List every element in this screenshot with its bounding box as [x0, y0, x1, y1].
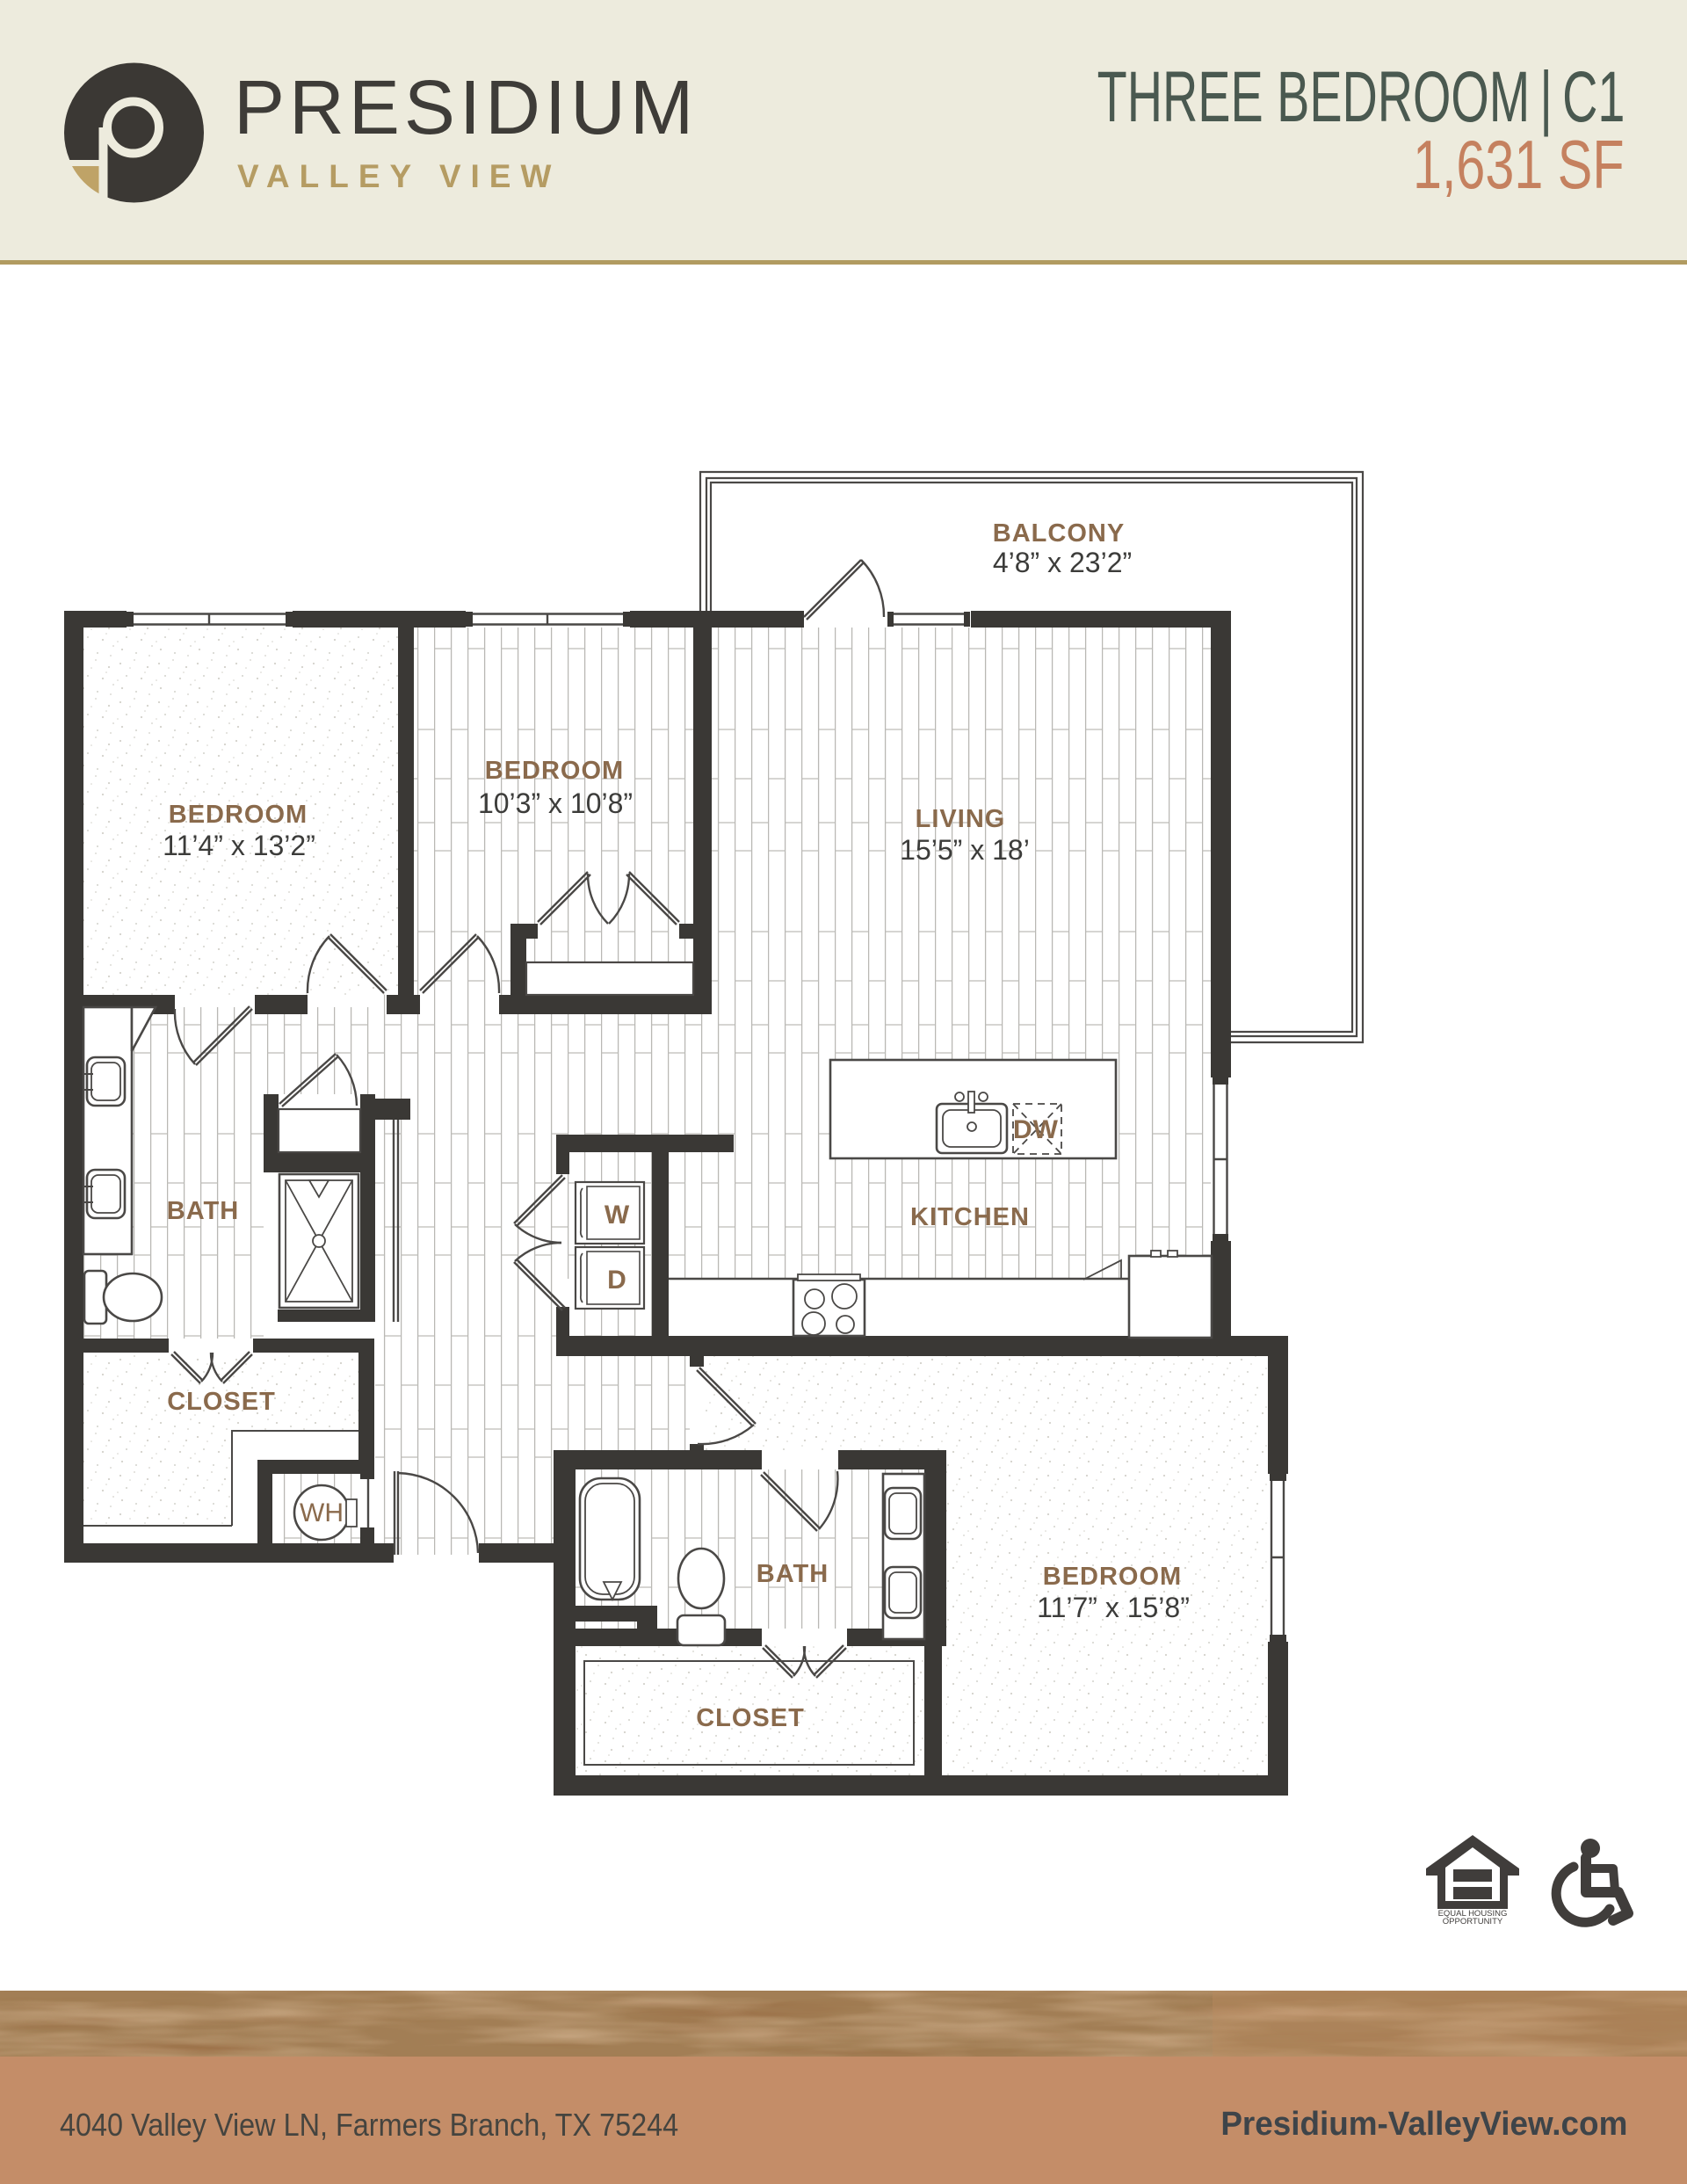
svg-text:BATH: BATH — [757, 1560, 829, 1588]
svg-text:BATH: BATH — [167, 1197, 239, 1225]
svg-text:CLOSET: CLOSET — [167, 1388, 276, 1416]
svg-text:BALCONY: BALCONY — [993, 519, 1125, 548]
svg-text:CLOSET: CLOSET — [696, 1704, 805, 1732]
svg-text:4’8” x 23’2”: 4’8” x 23’2” — [993, 547, 1132, 578]
svg-text:11’4” x 13’2”: 11’4” x 13’2” — [163, 830, 315, 861]
svg-text:WH: WH — [300, 1498, 344, 1527]
svg-text:15’5” x 18’: 15’5” x 18’ — [900, 834, 1030, 866]
svg-text:DW: DW — [1013, 1115, 1059, 1144]
svg-text:OPPORTUNITY: OPPORTUNITY — [1443, 1917, 1503, 1926]
svg-text:D: D — [607, 1266, 626, 1295]
svg-text:BEDROOM: BEDROOM — [485, 757, 624, 785]
svg-text:BEDROOM: BEDROOM — [169, 801, 308, 829]
svg-text:BEDROOM: BEDROOM — [1043, 1563, 1182, 1591]
svg-text:LIVING: LIVING — [916, 805, 1006, 833]
svg-text:10’3” x 10’8”: 10’3” x 10’8” — [478, 787, 633, 819]
svg-text:KITCHEN: KITCHEN — [910, 1203, 1030, 1231]
svg-text:11’7” x 15’8”: 11’7” x 15’8” — [1037, 1592, 1190, 1623]
svg-text:W: W — [605, 1201, 630, 1230]
